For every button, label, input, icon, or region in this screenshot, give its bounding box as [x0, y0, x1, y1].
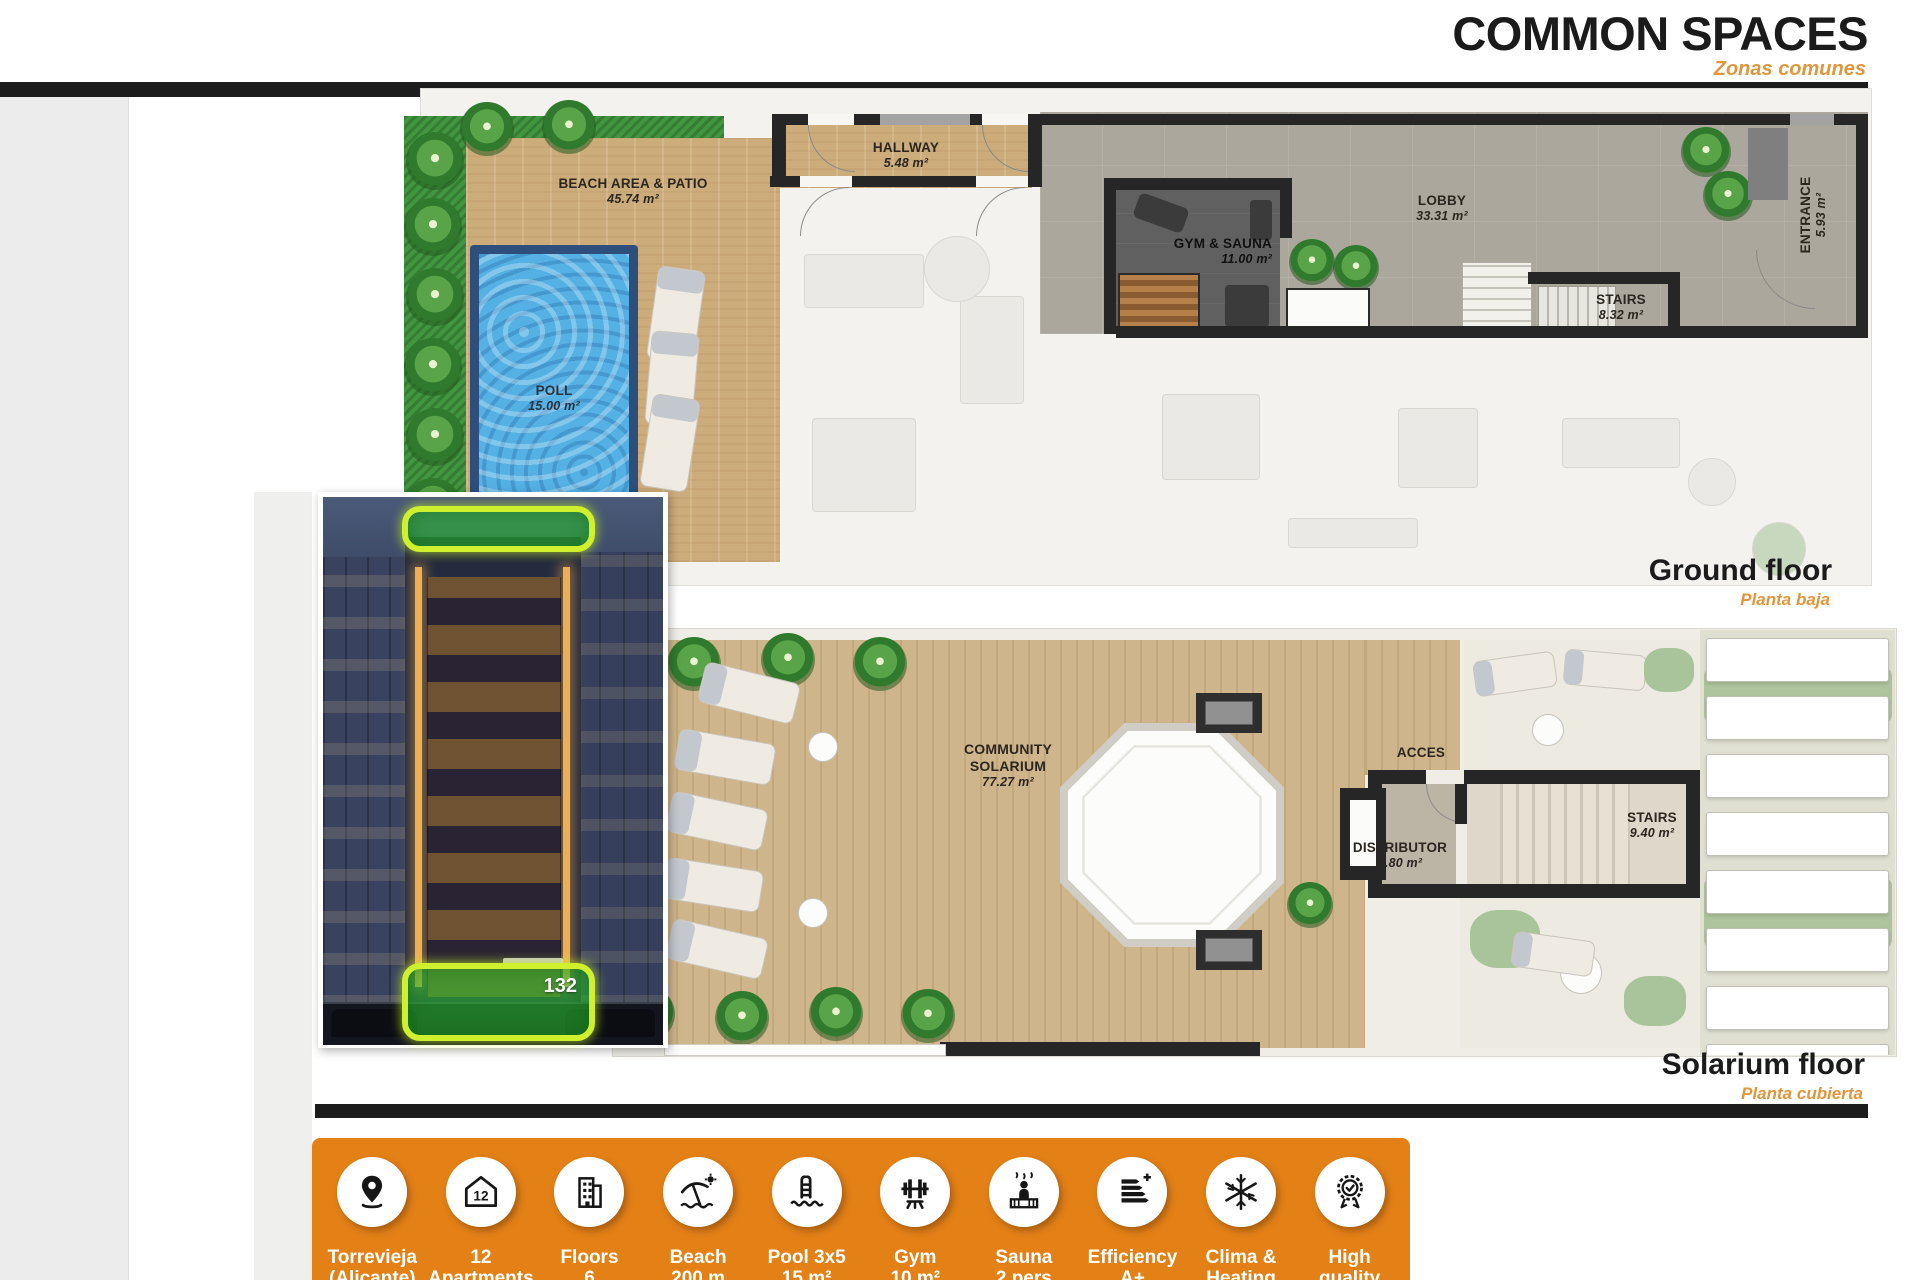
furniture-ghost [1162, 394, 1260, 480]
wall-segment [1856, 114, 1868, 338]
furniture-ghost [1562, 418, 1680, 468]
feature-item: Clima & Heating [1187, 1138, 1296, 1280]
wall-segment [1455, 784, 1467, 824]
feature-icon-circle [1206, 1157, 1276, 1227]
climate-snowflake-icon [1220, 1171, 1262, 1213]
palm-plant [406, 132, 464, 190]
furniture-ghost [1688, 458, 1736, 506]
lit-balconies [427, 577, 561, 997]
window-segment [1790, 114, 1834, 125]
furniture-ghost [1288, 518, 1418, 548]
feature-item: Pool 3x5 15 m² [752, 1138, 861, 1280]
palm-plant [1681, 127, 1731, 177]
palm-plant [809, 987, 863, 1041]
furniture-ghost [960, 296, 1024, 404]
bottom-divider-bar [315, 1104, 1868, 1118]
feature-item: 12 12 Apartments [427, 1138, 536, 1280]
wall-segment [1280, 178, 1292, 238]
feature-item: Efficiency A+ [1078, 1138, 1187, 1280]
garden-patch [1624, 976, 1686, 1026]
left-margin-strip-2 [254, 492, 312, 1280]
ground-floor-caption: Ground floor [1649, 554, 1832, 588]
features-list: Torrevieja (Alicante) 12 12 Apartments [318, 1138, 1404, 1280]
highlight-number: 132 [544, 975, 577, 998]
palm-plant [1333, 245, 1379, 291]
feature-label: Floors 6 [560, 1247, 618, 1280]
room-label-solarium: COMMUNITY SOLARIUM 77.27 m² [952, 741, 1064, 790]
palm-plant [404, 198, 462, 256]
door-opening [1426, 770, 1464, 784]
palm-plant [901, 989, 955, 1043]
furniture-ghost [924, 236, 990, 302]
solarium-floor-caption-es: Planta cubierta [1741, 1084, 1863, 1104]
quality-medal-icon [1329, 1171, 1371, 1213]
page-title: COMMON SPACES [1452, 6, 1868, 61]
feature-icon-circle [554, 1157, 624, 1227]
palm-plant [853, 637, 907, 691]
door-opening [800, 176, 852, 187]
feature-icon-circle [337, 1157, 407, 1227]
feature-icon-circle [880, 1157, 950, 1227]
door-opening [976, 176, 1028, 187]
palm-plant [460, 102, 514, 156]
ground-floor-caption-es: Planta baja [1740, 590, 1830, 610]
skylight-vent [1196, 693, 1262, 733]
room-label-distributor: DISTRIBUTOR 7.80 m² [1315, 840, 1485, 872]
garden-patch [1644, 648, 1694, 692]
feature-item: Beach 200 m [644, 1138, 753, 1280]
feature-icon-circle [989, 1157, 1059, 1227]
window-segment [880, 114, 970, 125]
sauna-benches [1118, 273, 1200, 330]
apartments-icon: 12 [460, 1171, 502, 1213]
wall-segment [1104, 178, 1116, 334]
left-margin-strip [0, 97, 129, 1280]
wall-segment [1368, 770, 1426, 784]
sauna-icon [1003, 1171, 1045, 1213]
feature-item: Floors 6 [535, 1138, 644, 1280]
ground-highlight-box: 132 [402, 963, 595, 1041]
pergola-slats [1700, 630, 1895, 1055]
wall-segment [1668, 284, 1680, 336]
gym-icon [894, 1171, 936, 1213]
wall-segment [772, 114, 786, 187]
feature-icon-circle [772, 1157, 842, 1227]
feature-icon-circle [1315, 1157, 1385, 1227]
room-label-pool: POLL 15.00 m² [494, 383, 614, 415]
palm-plant [406, 268, 464, 326]
sun-lounger [1563, 648, 1648, 691]
entrance-panel [1748, 128, 1788, 200]
svg-text:12: 12 [473, 1188, 489, 1203]
room-label-entrance: ENTRANCE 5.93 m² [1798, 155, 1838, 275]
wall-segment [1104, 178, 1292, 190]
efficiency-icon [1111, 1171, 1153, 1213]
feature-label: Pool 3x5 15 m² [768, 1247, 846, 1280]
skylight-vent [1196, 930, 1262, 970]
wall-segment [1116, 326, 1868, 338]
pool-icon [786, 1171, 828, 1213]
palm-plant [715, 991, 769, 1045]
door-opening [982, 114, 1028, 125]
floors-icon [568, 1171, 610, 1213]
feature-item: High quality [1295, 1138, 1404, 1280]
feature-label: 12 Apartments [428, 1247, 534, 1280]
side-building [575, 552, 663, 1007]
feature-icon-circle [663, 1157, 733, 1227]
wall-segment [1368, 884, 1700, 898]
feature-label: Gym 10 m² [890, 1247, 940, 1280]
furniture-ghost [804, 254, 924, 308]
furniture-ghost [1398, 408, 1478, 488]
feature-item: Gym 10 m² [861, 1138, 970, 1280]
room-label-stairs-solarium: STAIRS 9.40 m² [1597, 810, 1707, 842]
furniture-ghost [812, 418, 916, 512]
feature-icon-circle [1097, 1157, 1167, 1227]
room-label-hallway: HALLWAY 5.48 m² [846, 140, 966, 172]
beach-icon [677, 1171, 719, 1213]
main-building [405, 537, 581, 1012]
deck-curb [664, 1044, 946, 1056]
palm-plant [404, 338, 462, 396]
palm-plant [406, 408, 464, 466]
room-label-acces: ACCES [1371, 745, 1471, 761]
palm-plant [1289, 239, 1335, 285]
page-subtitle: Zonas comunes [1714, 58, 1866, 81]
brochure-page: COMMON SPACES Zonas comunes POLL 15.00 m… [0, 0, 1920, 1280]
wall-segment [940, 1042, 1260, 1056]
feature-icon-circle: 12 [446, 1157, 516, 1227]
feature-label: Efficiency A+ [1088, 1247, 1178, 1280]
feature-item: Sauna 2 pers [970, 1138, 1079, 1280]
room-label-lobby: LOBBY 33.31 m² [1382, 193, 1502, 225]
octagon-skylight [1060, 723, 1284, 947]
led-light-strip [563, 567, 570, 987]
feature-label: Beach 200 m [670, 1247, 727, 1280]
gym-equipment [1225, 285, 1269, 327]
stair-treads [1462, 262, 1532, 332]
solarium-floor-caption: Solarium floor [1662, 1048, 1865, 1082]
room-label-stairs: STAIRS 8.32 m² [1566, 292, 1676, 324]
solarium-floor-plan: COMMUNITY SOLARIUM 77.27 m² ACCES DISTRI… [612, 628, 1895, 1058]
gym-equipment [1250, 200, 1272, 240]
palm-plant [542, 100, 596, 154]
palm-plant [1287, 882, 1333, 928]
table [798, 898, 828, 928]
table [808, 732, 838, 762]
building-photo: 132 [318, 492, 668, 1048]
room-label-gym: GYM & SAUNA 11.00 m² [1120, 236, 1272, 268]
wall-segment [1464, 770, 1700, 784]
feature-label: Torrevieja (Alicante) [328, 1247, 417, 1280]
feature-label: High quality [1319, 1247, 1380, 1280]
led-light-strip [415, 567, 422, 987]
feature-label: Sauna 2 pers [995, 1247, 1052, 1280]
wall-segment [1528, 272, 1680, 284]
wall-segment [1028, 114, 1042, 187]
table [1532, 714, 1564, 746]
room-label-beach: BEACH AREA & PATIO 45.74 m² [543, 176, 723, 208]
feature-item: Torrevieja (Alicante) [318, 1138, 427, 1280]
location-pin-icon [351, 1171, 393, 1213]
feature-label: Clima & Heating [1206, 1247, 1277, 1280]
door-opening [808, 114, 854, 125]
side-building [323, 557, 415, 1007]
solarium-highlight-box [402, 506, 595, 552]
palm-plant [1703, 171, 1753, 221]
